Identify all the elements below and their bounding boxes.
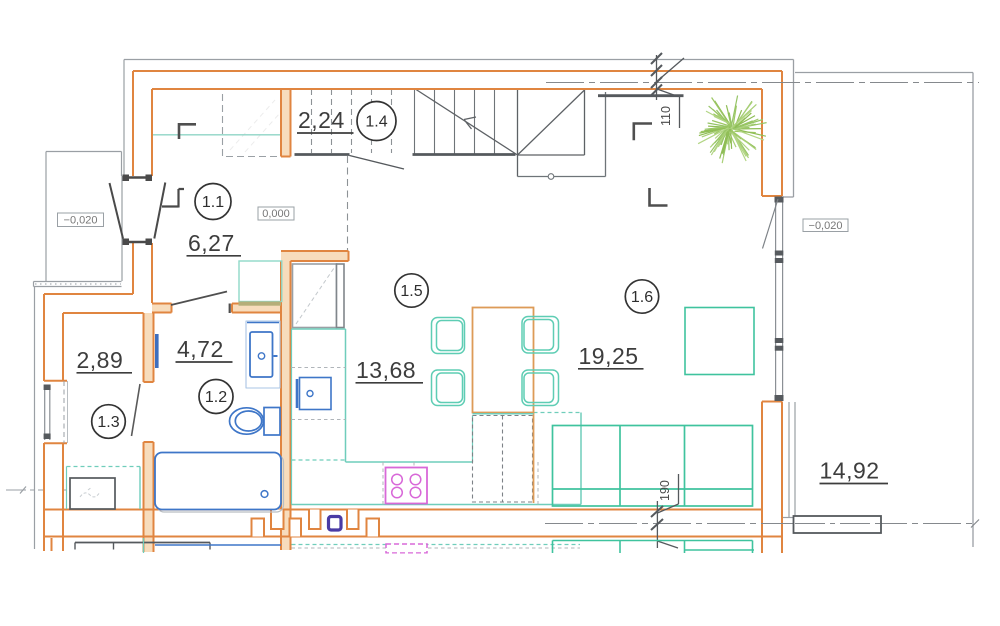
svg-text:1.3: 1.3 xyxy=(97,414,119,431)
svg-text:0,000: 0,000 xyxy=(262,208,290,220)
svg-text:110: 110 xyxy=(659,106,673,126)
svg-text:19,25: 19,25 xyxy=(579,343,639,369)
svg-text:14,92: 14,92 xyxy=(820,458,880,484)
svg-text:1.5: 1.5 xyxy=(400,283,422,300)
svg-text:1.4: 1.4 xyxy=(365,114,387,131)
svg-text:1.1: 1.1 xyxy=(202,194,224,211)
svg-text:1.2: 1.2 xyxy=(205,389,227,406)
svg-text:190: 190 xyxy=(658,480,672,501)
svg-text:6,27: 6,27 xyxy=(188,230,235,256)
svg-text:2,89: 2,89 xyxy=(77,347,124,373)
svg-text:4,72: 4,72 xyxy=(177,336,224,362)
svg-text:2,24: 2,24 xyxy=(298,107,345,133)
svg-text:−0,020: −0,020 xyxy=(64,215,98,227)
svg-text:1.6: 1.6 xyxy=(631,289,653,306)
svg-text:−0,020: −0,020 xyxy=(809,220,843,232)
svg-text:13,68: 13,68 xyxy=(356,357,416,383)
